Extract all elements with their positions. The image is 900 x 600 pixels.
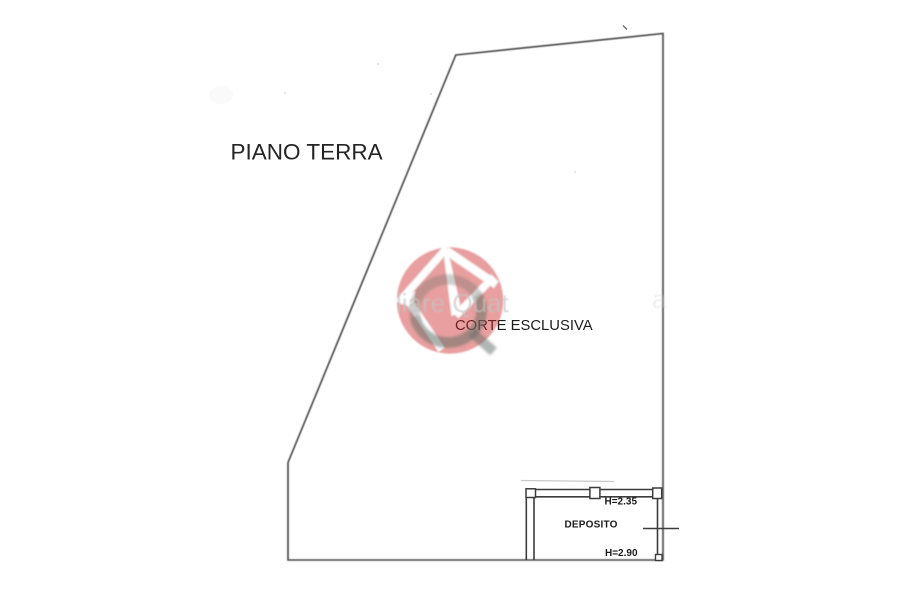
svg-text:DEPOSITO: DEPOSITO — [565, 519, 618, 530]
svg-text:H=2.90: H=2.90 — [605, 548, 638, 559]
svg-text:a: a — [652, 284, 667, 314]
svg-text:liare Quat: liare Quat — [396, 288, 509, 318]
svg-text:PIANO TERRA: PIANO TERRA — [231, 140, 383, 165]
svg-text:H=2.35: H=2.35 — [605, 497, 638, 508]
